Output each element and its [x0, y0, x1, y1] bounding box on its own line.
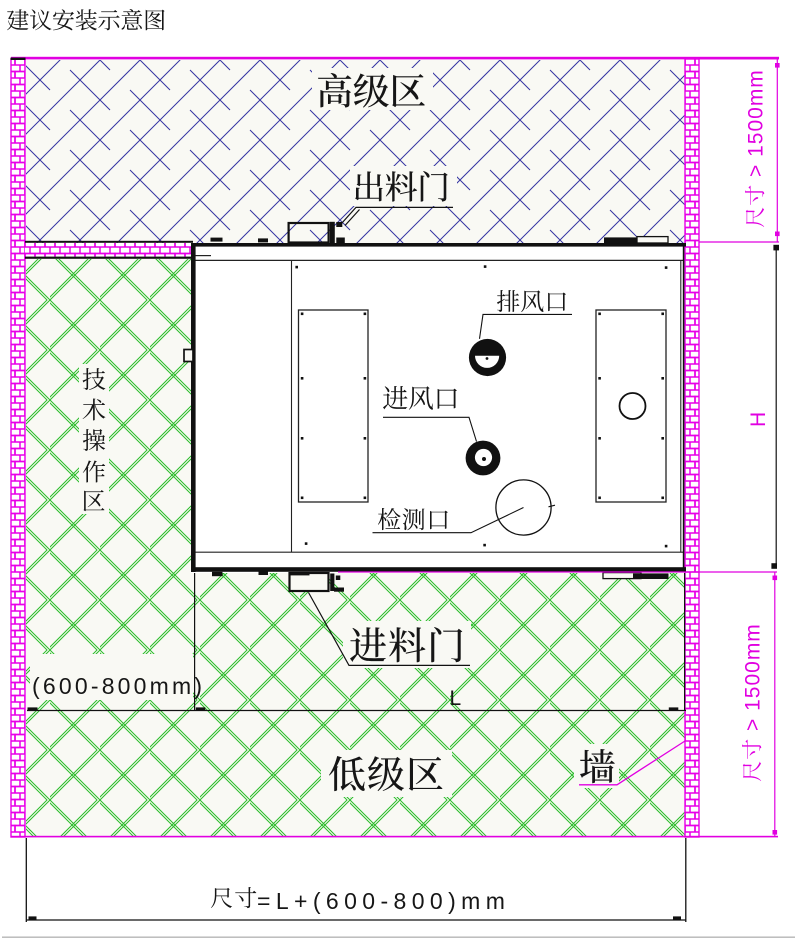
svg-text:=L+(600-800)mm: =L+(600-800)mm: [257, 888, 510, 914]
svg-text:(600-800mm): (600-800mm): [32, 673, 205, 699]
svg-text:L: L: [450, 687, 462, 710]
svg-text:> 1500mm: > 1500mm: [745, 69, 768, 177]
svg-text:H: H: [747, 412, 770, 427]
svg-text:> 1500mm: > 1500mm: [742, 623, 765, 731]
